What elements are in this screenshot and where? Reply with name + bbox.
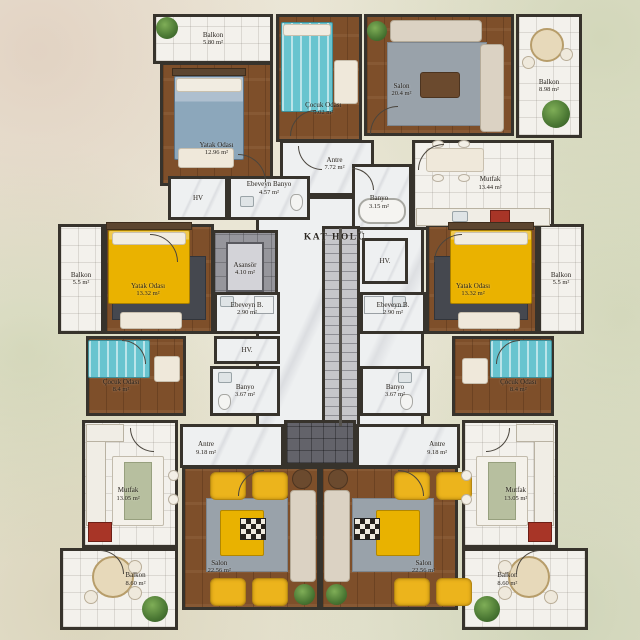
chairy-furniture (394, 472, 430, 500)
stool-furniture (461, 494, 472, 505)
checker-furniture (354, 518, 380, 540)
table-furniture (120, 312, 182, 329)
pillow-furniture (283, 24, 331, 36)
stairrail-furniture (339, 228, 342, 426)
plant-furniture (142, 596, 168, 622)
stool-furniture (458, 174, 470, 182)
roundsm-furniture (128, 560, 142, 574)
blanket-furniture (376, 510, 420, 556)
bedteal-furniture (88, 340, 150, 378)
floor-plan-canvas: KAT HOLÜBalkon5.80 m²Yatak Odası12.96 m²… (0, 0, 640, 640)
headboard-furniture (172, 68, 246, 76)
plant-furniture (542, 100, 570, 128)
checker-furniture (240, 518, 266, 540)
bedteal-furniture (490, 340, 552, 378)
chairy-furniture (252, 472, 288, 500)
roundsm-furniture (544, 590, 558, 604)
sofa-furniture (290, 490, 316, 582)
plant-furniture (474, 596, 500, 622)
roundsm-furniture (560, 48, 573, 61)
roundsm-furniture (84, 590, 98, 604)
room-hv-l (214, 336, 280, 364)
stool-furniture (461, 470, 472, 481)
chairy-furniture (436, 578, 472, 606)
room-hv-tl (168, 176, 228, 220)
room-antre-bl (180, 424, 284, 468)
pillow-furniture (176, 78, 242, 92)
table-furniture (462, 358, 488, 384)
elevcar-furniture (226, 242, 264, 292)
stove-furniture (528, 522, 552, 542)
plant-furniture (367, 21, 387, 41)
plant-furniture (326, 584, 347, 605)
pillow-furniture (112, 232, 186, 245)
table-furniture (178, 148, 234, 168)
sink-furniture (392, 296, 406, 307)
rounddark-furniture (292, 469, 312, 489)
pillow-furniture (454, 232, 528, 245)
roundsm-furniture (498, 586, 512, 600)
roundsm-furniture (128, 586, 142, 600)
round-furniture (530, 28, 564, 62)
room-antre-br (356, 424, 460, 468)
plant-furniture (294, 584, 315, 605)
stool-furniture (432, 174, 444, 182)
room-light-well (284, 420, 356, 466)
stool-furniture (168, 470, 179, 481)
sink-furniture (220, 296, 234, 307)
table-furniture (458, 312, 520, 329)
toilet-furniture (400, 394, 413, 410)
chairy-furniture (252, 578, 288, 606)
chairy-furniture (210, 578, 246, 606)
stool-furniture (458, 140, 470, 148)
sink-furniture (240, 196, 254, 207)
table-furniture (334, 60, 358, 104)
table-furniture (426, 148, 484, 172)
stool-furniture (432, 140, 444, 148)
stove-furniture (88, 522, 112, 542)
chairy-furniture (210, 472, 246, 500)
sink-furniture (218, 372, 232, 383)
headboard-furniture (106, 222, 192, 230)
sink-furniture (398, 372, 412, 383)
sink-furniture (452, 211, 468, 222)
toilet-furniture (218, 394, 231, 410)
round-furniture (508, 556, 550, 598)
counter-furniture (516, 424, 554, 442)
runner-furniture (124, 462, 152, 520)
stool-furniture (168, 494, 179, 505)
room-banyo-r (360, 366, 430, 416)
rounddark-furniture (328, 469, 348, 489)
table-furniture (154, 356, 180, 382)
sofa-furniture (324, 490, 350, 582)
sofa-furniture (390, 20, 482, 42)
tabled-furniture (420, 72, 460, 98)
roundsm-furniture (522, 56, 535, 69)
chairy-furniture (394, 578, 430, 606)
runner-furniture (488, 462, 516, 520)
room-balkon-mr (538, 224, 584, 334)
shower-furniture (254, 296, 274, 314)
room-balkon-ml (58, 224, 104, 334)
room-hv-c (362, 238, 408, 284)
toilet-furniture (290, 194, 303, 211)
counter-furniture (86, 424, 124, 442)
roundsm-furniture (498, 560, 512, 574)
headboard-furniture (448, 222, 534, 230)
shower-furniture (364, 296, 384, 314)
tub-furniture (358, 198, 406, 224)
sofa-furniture (480, 44, 504, 132)
plant-furniture (156, 17, 178, 39)
